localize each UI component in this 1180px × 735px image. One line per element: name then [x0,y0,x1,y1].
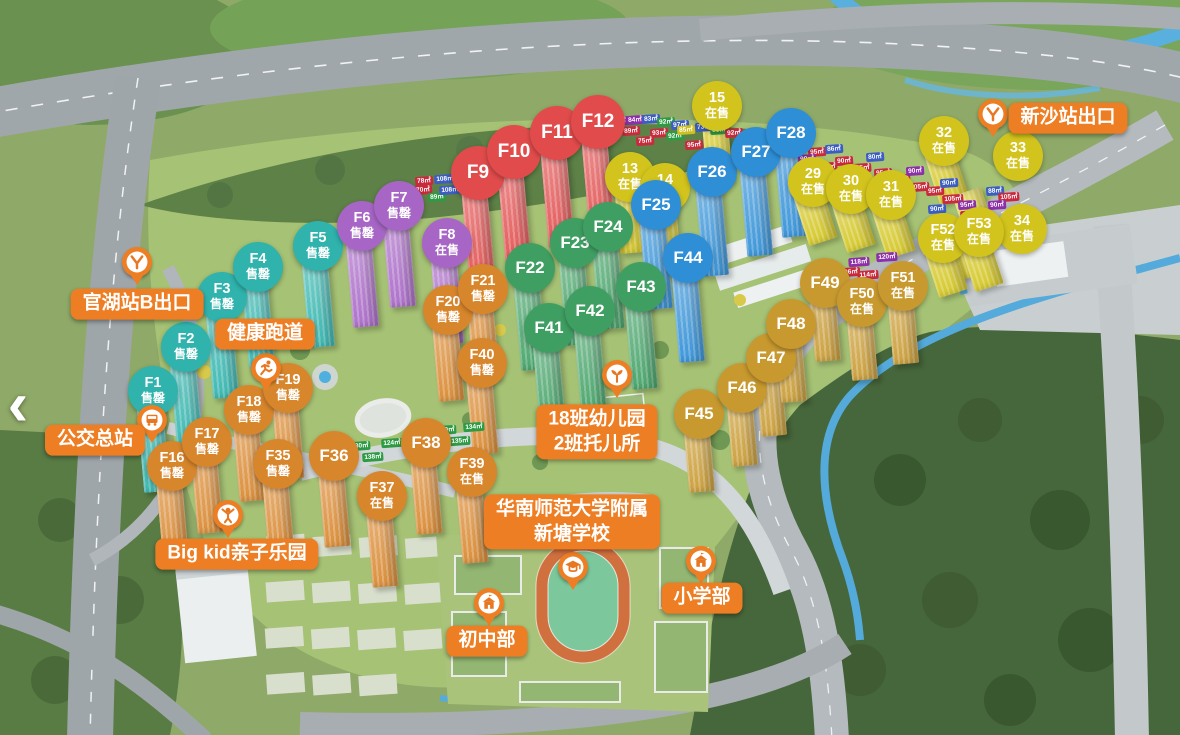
amenity-label-primary-section: 小学部 [661,583,742,614]
building-number: F12 [582,112,615,132]
runner-icon [251,353,281,383]
building-number: F7 [391,191,408,207]
building-number: F39 [460,457,485,473]
amenity-label-text: 2班托儿所 [548,432,645,457]
amenity-label-text: 18班幼儿园 [548,407,645,432]
building-number: F9 [467,163,489,183]
building-marker-33[interactable]: 33在售 [993,131,1043,181]
metro-pin-guanhu-exit [122,247,152,277]
sale-status: 在售 [967,233,991,247]
sale-status: 在售 [879,196,903,210]
amenity-label-text: 新塘学校 [496,522,648,547]
amenity-label-xinsha-exit: 新沙站出口 [1008,103,1127,134]
pin-tail [130,274,144,285]
building-marker-F38[interactable]: F38 [401,418,451,468]
amenity-label-bus-terminal: 公交总站 [45,425,145,456]
building-number: F50 [850,287,875,303]
sale-status: 售罄 [237,411,261,425]
building-marker-F25[interactable]: F25 [631,180,681,230]
building-number: 31 [883,180,899,196]
building-number: F2 [178,332,195,348]
kid-pin-bigkid-park [213,500,243,530]
area-tag: 90㎡ [988,200,1006,210]
building-number: F41 [534,319,563,337]
building-marker-F26[interactable]: F26 [687,147,737,197]
building-number: F43 [626,278,655,296]
building-marker-F42[interactable]: F42 [565,286,615,336]
building-marker-F51[interactable]: F51在售 [878,261,928,311]
building-marker-F12[interactable]: F12 [571,95,625,149]
area-tag: 135㎡ [449,436,471,446]
building-marker-F22[interactable]: F22 [505,243,555,293]
sale-status: 在售 [850,303,874,317]
building-marker-F35[interactable]: F35售罄 [253,439,303,489]
building-number: F8 [439,228,456,244]
building-marker-F43[interactable]: F43 [616,262,666,312]
building-number: 33 [1010,141,1026,157]
building-number: F24 [593,218,622,236]
building-marker-F7[interactable]: F7售罄 [374,181,424,231]
amenity-label-affiliated-school: 华南师范大学附属新塘学校 [484,494,660,549]
school-icon [686,546,716,576]
sale-status: 售罄 [387,207,411,221]
building-number: F36 [319,447,348,465]
building-number: F18 [237,395,262,411]
building-marker-F45[interactable]: F45 [674,389,724,439]
building-number: F28 [776,124,805,142]
building-number: F46 [727,379,756,397]
building-marker-34[interactable]: 34在售 [997,204,1047,254]
building-marker-F21[interactable]: F21售罄 [458,264,508,314]
building-number: F22 [515,259,544,277]
building-number: F3 [214,282,231,298]
amenity-label-text: 新沙站出口 [1020,106,1115,131]
building-marker-F37[interactable]: F37在售 [357,471,407,521]
sprout-icon [602,360,632,390]
building-number: F27 [741,143,770,161]
sale-status: 售罄 [195,443,219,457]
sale-status: 售罄 [160,467,184,481]
sale-status: 在售 [1006,157,1030,171]
building-marker-15[interactable]: 15在售 [692,81,742,131]
runner-pin-health-track [251,353,281,383]
building-marker-F8[interactable]: F8在售 [422,218,472,268]
sale-status: 售罄 [266,465,290,479]
sale-status: 售罄 [276,389,300,403]
school-pin-primary-section [686,546,716,576]
sale-status: 售罄 [436,311,460,325]
building-marker-F17[interactable]: F17售罄 [182,417,232,467]
school-pin-junior-section [474,588,504,618]
pin-tail [482,615,496,626]
building-number: F44 [673,249,702,267]
building-number: F26 [697,163,726,181]
building-marker-31[interactable]: 31在售 [866,170,916,220]
metro-icon [978,99,1008,129]
building-number: F20 [436,295,461,311]
amenity-label-text: 健康跑道 [227,322,303,347]
sale-status: 售罄 [210,298,234,312]
amenity-label-junior-section: 初中部 [446,626,527,657]
amenity-label-bigkid-park: Big kid亲子乐园 [155,539,318,570]
area-tag: 85㎡ [677,125,695,135]
building-number: F37 [370,481,395,497]
amenity-label-text: 华南师范大学附属 [496,497,648,522]
pin-tail [986,126,1000,137]
amenity-label-text: 公交总站 [57,428,133,453]
building-number: F40 [470,348,495,364]
area-tag: 124㎡ [381,438,403,448]
building-marker-F40[interactable]: F40售罄 [457,338,507,388]
building-number: F11 [541,123,573,143]
sale-status: 售罄 [350,227,374,241]
building-marker-F2[interactable]: F2售罄 [161,322,211,372]
sale-status: 在售 [1010,230,1034,244]
sale-status: 在售 [891,287,915,301]
area-tag: 80㎡ [866,152,884,162]
masterplan-aerial-view: ‹ 78㎡70㎡108㎡89㎡108㎡83㎡84㎡80㎡89㎡83㎡92㎡97㎡… [0,0,1180,735]
building-marker-F28[interactable]: F28 [766,108,816,158]
pin-tail [610,387,624,398]
building-number: F49 [810,274,839,292]
building-number: 15 [709,91,725,107]
building-number: F38 [411,434,440,452]
building-number: F52 [931,223,956,239]
sale-status: 在售 [370,497,394,511]
building-marker-F53[interactable]: F53在售 [954,207,1004,257]
building-marker-F36[interactable]: F36 [309,431,359,481]
amenity-label-guanhu-exit: 官湖站B出口 [71,289,204,320]
building-number: 32 [936,126,952,142]
building-number: 30 [843,174,859,190]
sale-status: 售罄 [470,364,494,378]
building-number: F1 [145,376,162,392]
building-number: F47 [756,349,785,367]
building-marker-32[interactable]: 32在售 [919,116,969,166]
metro-pin-xinsha-exit [978,99,1008,129]
amenity-label-text: 官湖站B出口 [83,292,192,317]
building-marker-F39[interactable]: F39在售 [447,447,497,497]
building-number: F5 [310,231,327,247]
building-number: F17 [195,427,220,443]
sprout-pin-kindergarten [602,360,632,390]
building-marker-F4[interactable]: F4售罄 [233,242,283,292]
area-tag: 89㎡ [622,126,640,136]
amenity-label-text: 初中部 [458,629,515,654]
sale-status: 在售 [839,190,863,204]
pin-tail [566,579,580,590]
building-number: F21 [471,274,496,290]
kid-icon [213,500,243,530]
building-number: F6 [354,211,371,227]
metro-icon [122,247,152,277]
building-number: F51 [891,271,916,287]
area-tag: 118㎡ [848,257,870,267]
area-tag: 134㎡ [463,422,485,432]
building-number: 29 [805,167,821,183]
carousel-prev-arrow[interactable]: ‹ [0,376,42,440]
building-number: F25 [641,196,670,214]
pin-tail [259,380,273,391]
building-number: F16 [160,451,185,467]
sale-status: 在售 [931,239,955,253]
cap-icon [558,552,588,582]
building-number: 34 [1014,214,1030,230]
sale-status: 在售 [705,107,729,121]
amenity-label-text: 小学部 [673,586,730,611]
amenity-label-health-track: 健康跑道 [215,319,315,350]
school-icon [474,588,504,618]
sale-status: 售罄 [471,290,495,304]
building-number: F10 [498,142,531,162]
area-tag: 90㎡ [940,178,958,188]
area-tag: 120㎡ [876,252,898,262]
amenity-label-text: Big kid亲子乐园 [167,542,306,567]
building-number: F35 [266,449,291,465]
pin-tail [221,527,235,538]
building-number: F48 [776,315,805,333]
building-marker-F5[interactable]: F5售罄 [293,221,343,271]
sale-status: 售罄 [246,268,270,282]
area-tag: 90㎡ [906,166,924,176]
sale-status: 售罄 [174,348,198,362]
area-tag: 86㎡ [825,144,843,154]
sale-status: 售罄 [306,247,330,261]
building-number: F42 [575,302,604,320]
sale-status: 在售 [460,473,484,487]
sale-status: 售罄 [141,392,165,406]
building-marker-F48[interactable]: F48 [766,299,816,349]
building-number: F45 [684,405,713,423]
cap-pin-affiliated-school [558,552,588,582]
building-number: 13 [622,162,638,178]
building-number: F4 [250,252,267,268]
area-tag: 75㎡ [636,136,654,146]
building-marker-F44[interactable]: F44 [663,233,713,283]
area-tag: 138㎡ [362,452,384,462]
building-number: F53 [967,217,992,233]
pin-tail [145,432,159,443]
sale-status: 在售 [435,244,459,258]
sale-status: 在售 [801,183,825,197]
amenity-label-kindergarten: 18班幼儿园2班托儿所 [536,404,657,459]
building-marker-F24[interactable]: F24 [583,202,633,252]
sale-status: 在售 [932,142,956,156]
